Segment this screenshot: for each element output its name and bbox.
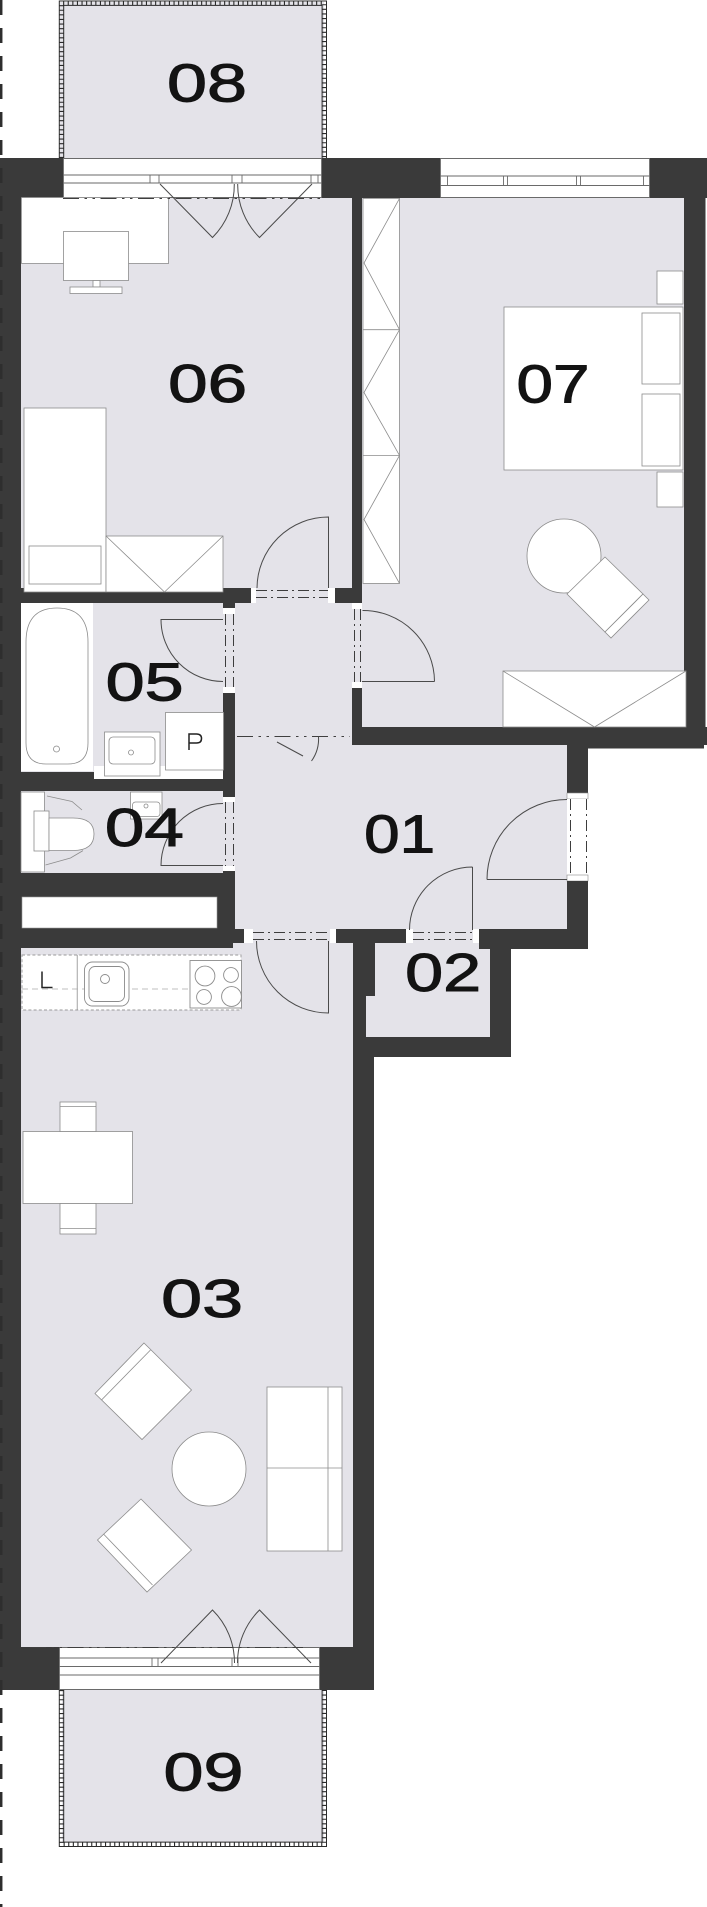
svg-text:03: 03 [161, 1269, 243, 1329]
svg-text:04: 04 [105, 798, 184, 858]
svg-text:02: 02 [405, 943, 481, 1003]
svg-text:07: 07 [517, 354, 590, 414]
svg-text:08: 08 [167, 54, 247, 114]
svg-text:05: 05 [106, 653, 184, 713]
svg-text:01: 01 [364, 805, 435, 865]
svg-text:06: 06 [168, 354, 247, 414]
svg-text:09: 09 [164, 1743, 244, 1803]
